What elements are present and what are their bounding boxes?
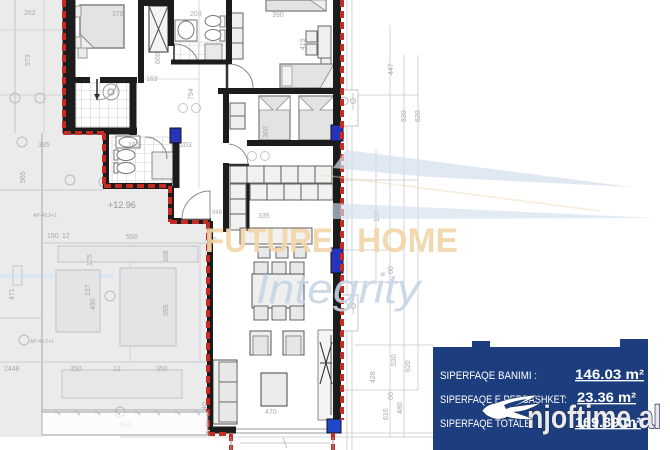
svg-text:948: 948 bbox=[212, 210, 223, 216]
svg-text:FUTURE: FUTURE bbox=[205, 222, 333, 260]
svg-text:565: 565 bbox=[20, 171, 27, 183]
svg-text:490: 490 bbox=[90, 298, 97, 310]
svg-text:165: 165 bbox=[128, 142, 140, 149]
svg-text:175: 175 bbox=[87, 254, 94, 266]
svg-text:428: 428 bbox=[370, 371, 377, 383]
svg-text:23.36 m²: 23.36 m² bbox=[577, 390, 637, 405]
svg-text:12: 12 bbox=[62, 233, 70, 240]
svg-text:595: 595 bbox=[163, 304, 170, 316]
svg-text:HOME: HOME bbox=[357, 222, 458, 260]
svg-text:AP-40.2+1: AP-40.2+1 bbox=[33, 213, 57, 219]
svg-text:530: 530 bbox=[391, 354, 398, 366]
svg-text:376: 376 bbox=[112, 11, 124, 18]
svg-text:AP-40.2+1: AP-40.2+1 bbox=[30, 339, 54, 345]
svg-text:419: 419 bbox=[300, 38, 307, 50]
svg-text:+12.96: +12.96 bbox=[108, 200, 136, 210]
svg-text:335: 335 bbox=[258, 213, 270, 220]
svg-text:530: 530 bbox=[401, 110, 408, 122]
svg-text:360: 360 bbox=[263, 126, 270, 138]
svg-text:163: 163 bbox=[146, 76, 158, 83]
svg-text:137: 137 bbox=[85, 284, 92, 296]
svg-text:794: 794 bbox=[188, 88, 195, 100]
svg-text:168: 168 bbox=[163, 250, 170, 262]
svg-text:600: 600 bbox=[155, 52, 162, 64]
svg-text:SIPERFAQE BANIMI :: SIPERFAQE BANIMI : bbox=[440, 370, 537, 382]
svg-text:146.03 m²: 146.03 m² bbox=[575, 367, 645, 382]
svg-text:480: 480 bbox=[397, 402, 404, 414]
svg-text:550: 550 bbox=[126, 234, 138, 241]
svg-text:620: 620 bbox=[415, 110, 422, 122]
svg-text:SIPERFAQE TOTALE:: SIPERFAQE TOTALE: bbox=[440, 418, 533, 430]
svg-text:150: 150 bbox=[47, 233, 59, 240]
svg-text:620: 620 bbox=[405, 360, 412, 372]
svg-text:385: 385 bbox=[38, 142, 50, 149]
svg-text:447: 447 bbox=[388, 63, 395, 75]
svg-text:470: 470 bbox=[265, 409, 277, 416]
svg-text:471: 471 bbox=[9, 288, 16, 300]
svg-text:203: 203 bbox=[180, 142, 192, 149]
svg-text:350: 350 bbox=[156, 366, 168, 373]
svg-text:12: 12 bbox=[113, 366, 121, 373]
svg-text:203: 203 bbox=[190, 11, 202, 18]
svg-text:169.39 m²: 169.39 m² bbox=[575, 415, 642, 430]
svg-text:Integrity: Integrity bbox=[256, 265, 423, 312]
svg-text:350: 350 bbox=[70, 366, 82, 373]
svg-text:60: 60 bbox=[388, 392, 395, 400]
svg-text:2448: 2448 bbox=[4, 366, 20, 373]
svg-text:390: 390 bbox=[272, 12, 284, 19]
svg-text:262: 262 bbox=[24, 10, 36, 17]
svg-text:615: 615 bbox=[383, 408, 390, 420]
svg-text:573: 573 bbox=[25, 54, 32, 66]
